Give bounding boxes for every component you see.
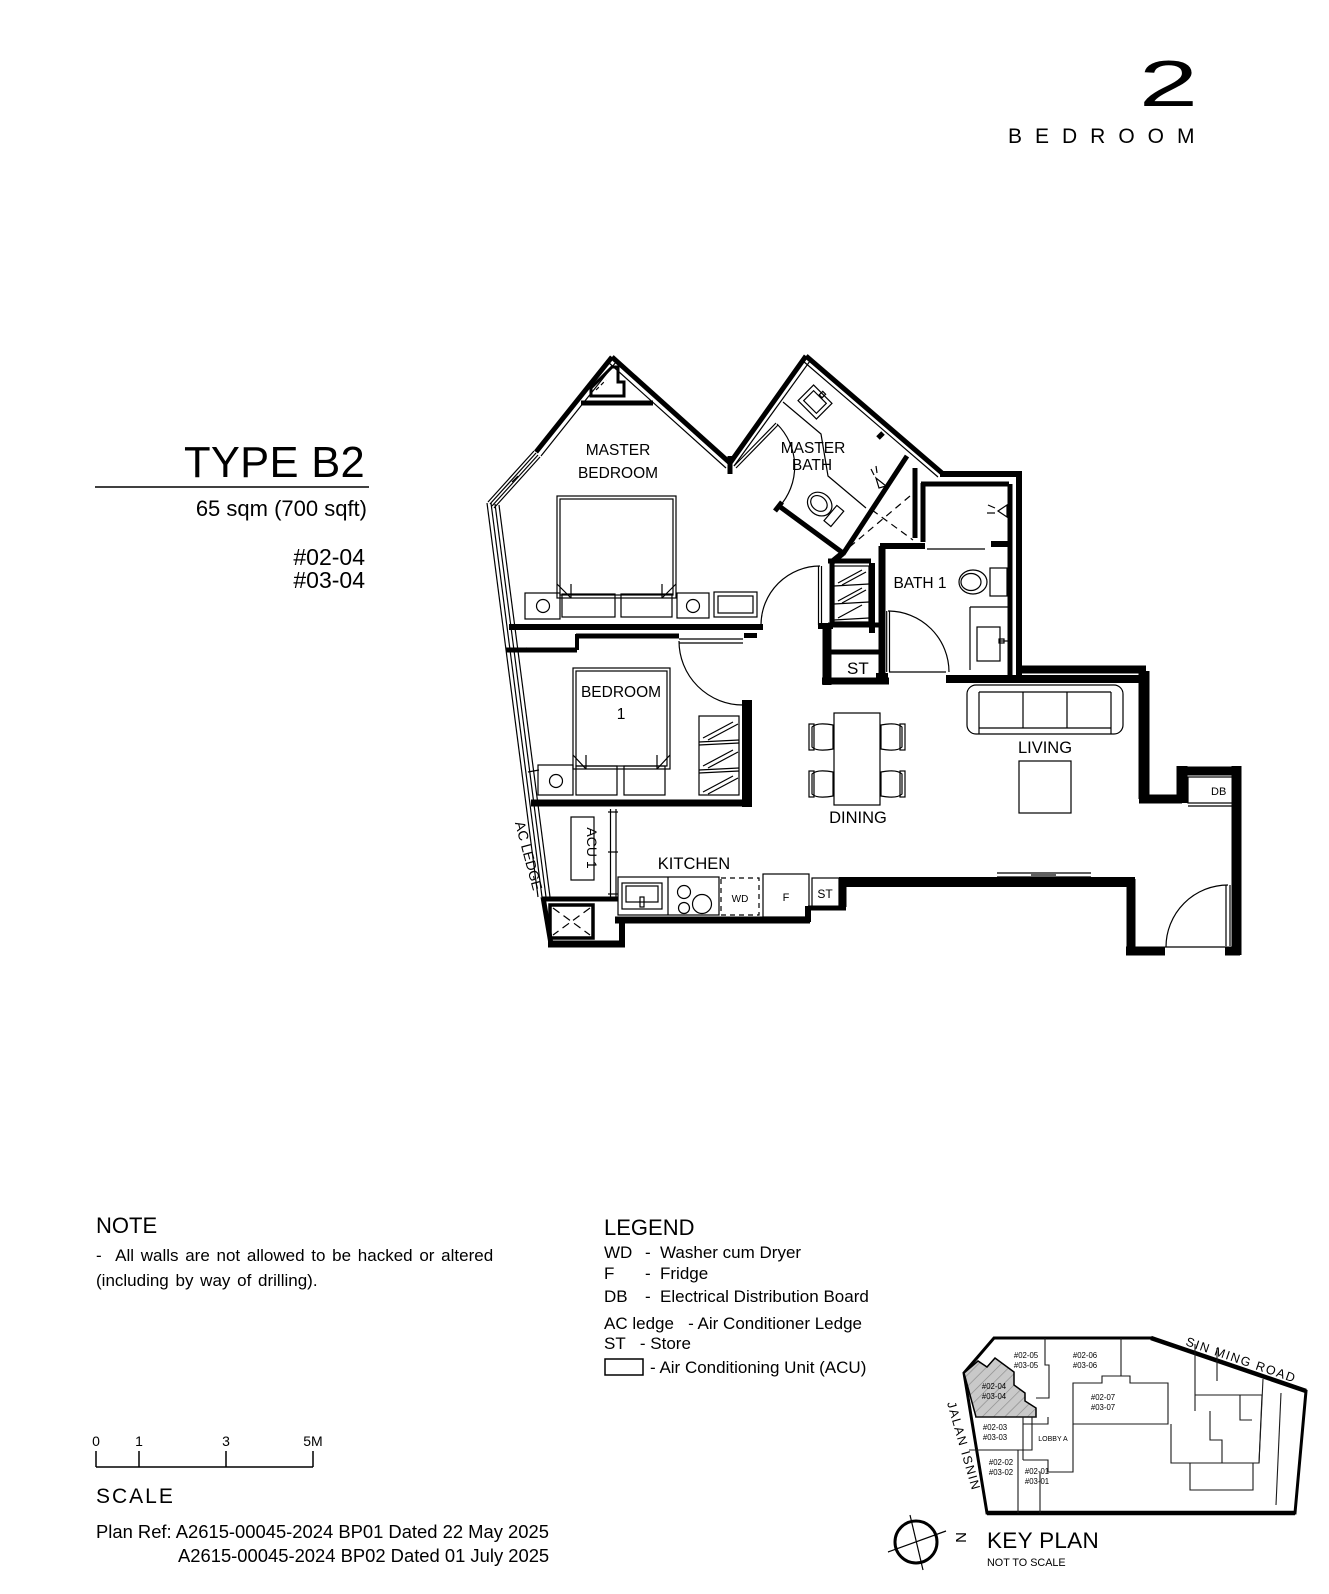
svg-text:#03-03: #03-03 [983, 1433, 1007, 1442]
svg-text:#03-04: #03-04 [293, 567, 365, 593]
svg-text:1: 1 [617, 706, 626, 723]
svg-text:#03-07: #03-07 [1091, 1403, 1115, 1412]
svg-text:5M: 5M [303, 1433, 322, 1449]
svg-text:#02-06: #02-06 [1073, 1351, 1097, 1360]
svg-text:ACU 1: ACU 1 [584, 827, 600, 868]
svg-text:MASTER: MASTER [781, 440, 846, 457]
svg-text:#02-05: #02-05 [1014, 1351, 1039, 1360]
svg-text:- Air Conditioning Unit (ACU): - Air Conditioning Unit (ACU) [650, 1358, 866, 1377]
svg-text:#02-04: #02-04 [982, 1382, 1007, 1391]
svg-text:#02-03: #02-03 [983, 1423, 1007, 1432]
svg-text:BEDROOM: BEDROOM [1008, 125, 1208, 148]
svg-text:KITCHEN: KITCHEN [658, 855, 730, 873]
svg-text:Electrical Distribution Board: Electrical Distribution Board [660, 1287, 869, 1306]
svg-text:BATH 1: BATH 1 [893, 575, 946, 592]
svg-text:LIVING: LIVING [1018, 739, 1072, 757]
svg-text:Fridge: Fridge [660, 1264, 708, 1283]
svg-text:#02-02: #02-02 [989, 1458, 1013, 1467]
svg-text:ST - Store: ST - Store [604, 1334, 691, 1353]
svg-text:#02-01: #02-01 [1025, 1467, 1049, 1476]
svg-text:NOTE: NOTE [96, 1213, 157, 1238]
svg-text:TYPE B2: TYPE B2 [184, 439, 365, 487]
svg-text:LOBBY A: LOBBY A [1038, 1436, 1068, 1443]
svg-text:- All walls are not allowed t: - All walls are not allowed to be hacked… [96, 1246, 493, 1265]
svg-text:#03-02: #03-02 [989, 1468, 1013, 1477]
svg-text:65 sqm (700 sqft): 65 sqm (700 sqft) [196, 496, 367, 521]
svg-text:(including by way of drilling): (including by way of drilling). [96, 1271, 318, 1290]
svg-text:KEY PLAN: KEY PLAN [987, 1528, 1099, 1553]
svg-text:BEDROOM: BEDROOM [581, 684, 661, 701]
svg-text:AC ledge - Air Conditioner L: AC ledge - Air Conditioner Ledge [604, 1314, 862, 1333]
svg-text:LEGEND: LEGEND [604, 1215, 694, 1240]
svg-text:SCALE: SCALE [96, 1485, 175, 1508]
svg-text:0: 0 [92, 1433, 100, 1449]
svg-text:3: 3 [222, 1433, 230, 1449]
svg-text:Washer cum Dryer: Washer cum Dryer [660, 1243, 801, 1262]
svg-text:#03-05: #03-05 [1014, 1361, 1039, 1370]
svg-text:WD: WD [604, 1243, 632, 1262]
svg-text:BEDROOM: BEDROOM [578, 465, 658, 482]
svg-text:N: N [952, 1532, 969, 1543]
svg-text:DB: DB [1211, 786, 1226, 798]
svg-text:1: 1 [135, 1433, 143, 1449]
svg-text:-: - [645, 1264, 651, 1283]
svg-text:ST: ST [847, 659, 869, 678]
svg-text:F: F [783, 892, 790, 904]
svg-text:SIN MING ROAD: SIN MING ROAD [1184, 1335, 1298, 1386]
svg-text:#03-01: #03-01 [1025, 1477, 1049, 1486]
svg-text:NOT TO SCALE: NOT TO SCALE [987, 1557, 1066, 1569]
svg-text:#03-04: #03-04 [982, 1392, 1007, 1401]
svg-text:MASTER: MASTER [586, 442, 651, 459]
svg-text:DB: DB [604, 1287, 628, 1306]
svg-text:A2615-00045-2024 BP02 Dated 01: A2615-00045-2024 BP02 Dated 01 July 2025 [178, 1545, 549, 1566]
svg-text:ST: ST [817, 887, 833, 901]
svg-text:DINING: DINING [829, 809, 887, 827]
svg-text:#03-06: #03-06 [1073, 1361, 1097, 1370]
svg-text:#02-07: #02-07 [1091, 1393, 1115, 1402]
svg-text:-: - [645, 1243, 651, 1262]
svg-text:F: F [604, 1264, 614, 1283]
svg-text:BATH: BATH [792, 457, 832, 474]
svg-text:2: 2 [1139, 47, 1198, 120]
svg-text:Plan Ref: A2615-00045-2024 BP0: Plan Ref: A2615-00045-2024 BP01 Dated 22… [96, 1521, 549, 1542]
svg-text:-: - [645, 1287, 651, 1306]
svg-text:WD: WD [732, 894, 749, 905]
